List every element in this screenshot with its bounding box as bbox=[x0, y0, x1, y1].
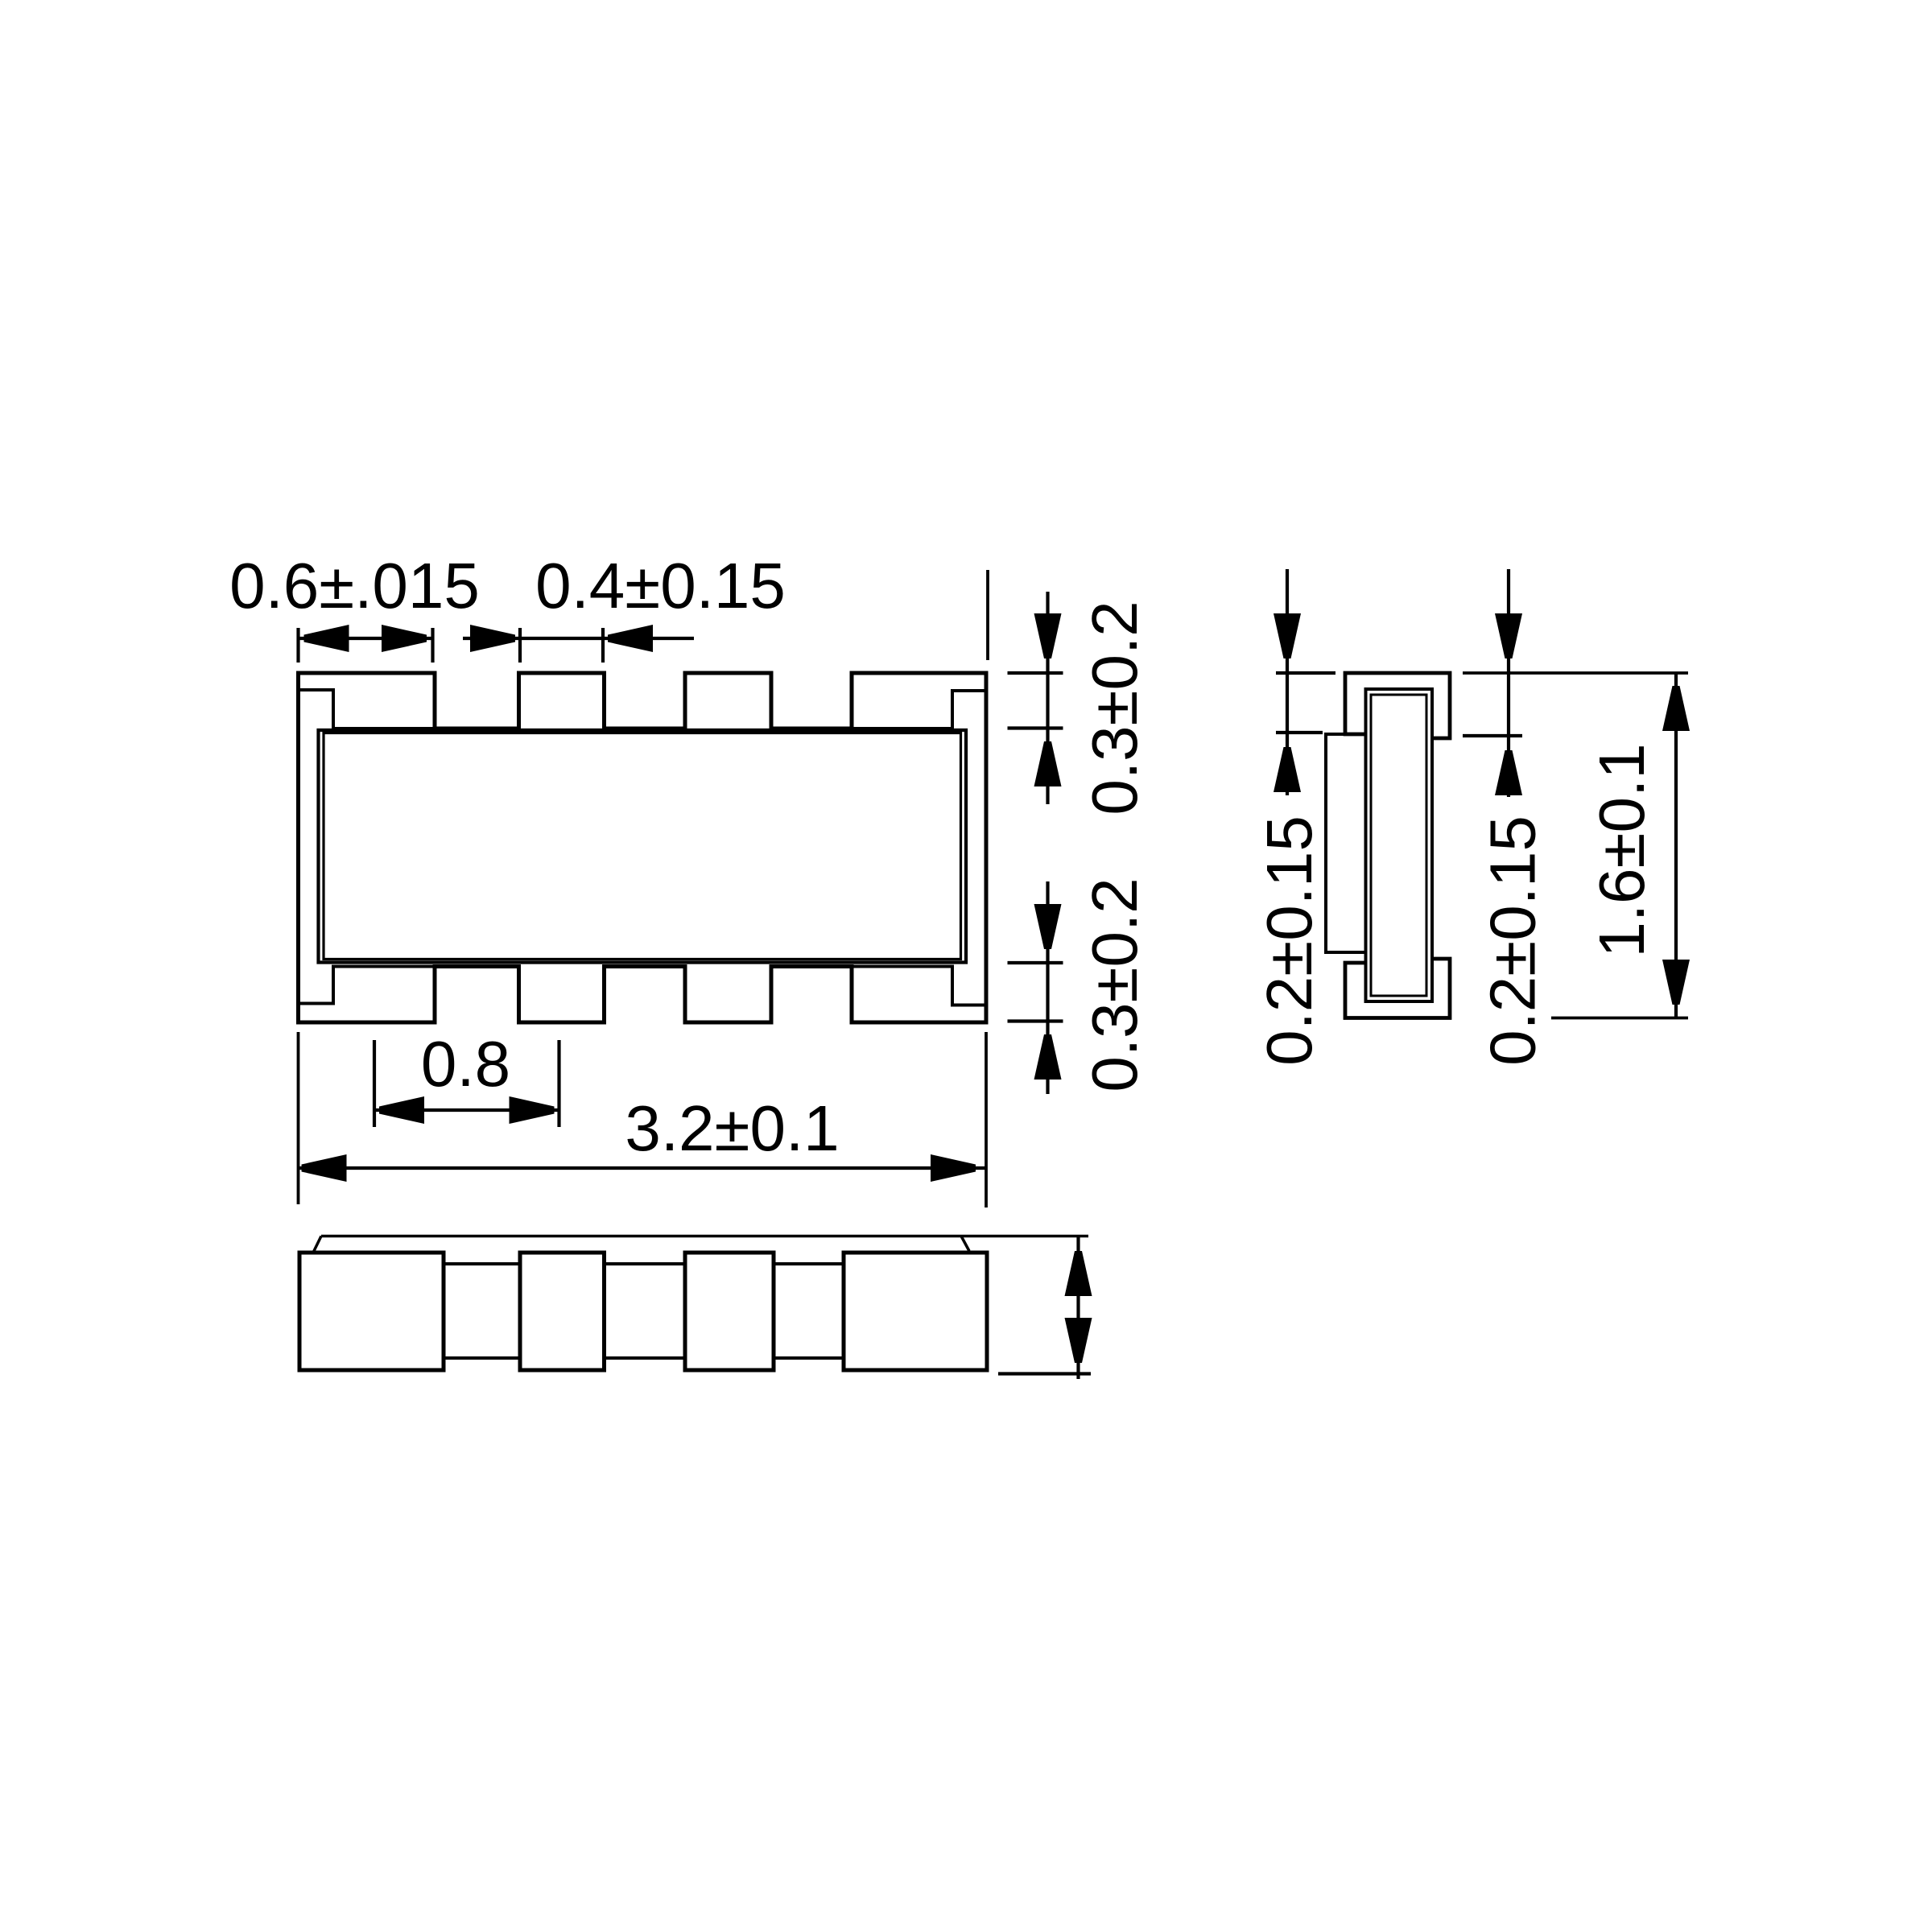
svg-text:0.6±.015: 0.6±.015 bbox=[229, 550, 480, 621]
svg-text:0.3±0.2: 0.3±0.2 bbox=[1079, 877, 1150, 1092]
svg-text:0.4±0.15: 0.4±0.15 bbox=[535, 550, 786, 621]
svg-text:3.2±0.1: 3.2±0.1 bbox=[625, 1092, 839, 1164]
svg-text:0.2±0.15: 0.2±0.15 bbox=[1253, 815, 1325, 1066]
svg-text:0.3±0.2: 0.3±0.2 bbox=[1079, 601, 1150, 815]
svg-text:1.6±0.1: 1.6±0.1 bbox=[1586, 743, 1657, 957]
svg-text:0.2±0.15: 0.2±0.15 bbox=[1477, 815, 1549, 1066]
svg-text:0.8: 0.8 bbox=[421, 1028, 510, 1100]
